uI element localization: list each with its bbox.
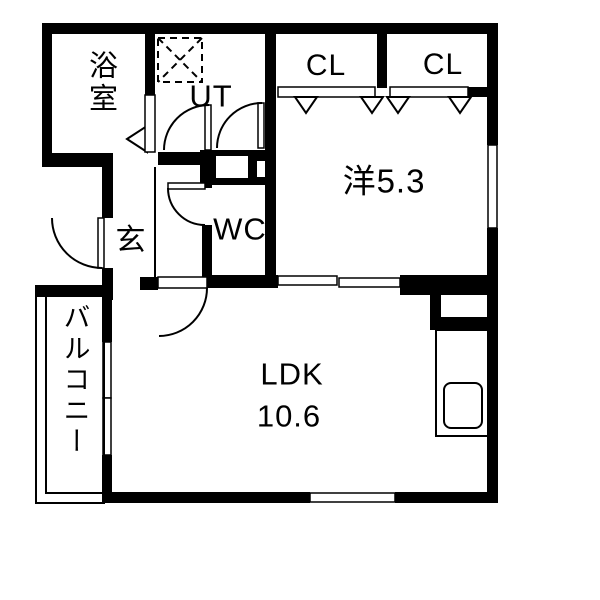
bath-door-opening-icon: [145, 95, 155, 152]
closet-left-door-icon: [278, 87, 375, 97]
closet-fold-mark-1-icon: [295, 97, 317, 113]
ut-door-right-leaf-icon: [258, 103, 264, 148]
label-ldk-size: 10.6: [257, 401, 321, 432]
wall-left-upper: [42, 23, 52, 167]
wall-bottom-right: [395, 492, 497, 503]
entrance-door-arc-icon: [52, 218, 102, 268]
wall-bottom-left: [102, 492, 310, 503]
label-closet-left: CL: [306, 51, 346, 81]
wall-entrance-left-upper: [102, 153, 113, 218]
wc-door-arc-icon: [168, 188, 205, 225]
entrance-step-line: [154, 167, 156, 277]
closet-fold-mark-3-icon: [387, 97, 409, 113]
kitchen-sink-icon: [444, 383, 482, 428]
floor-plan: 浴室 UT CL CL 洋5.3 WC 玄 LDK 10.6 バルコニー: [0, 0, 600, 600]
hall-ldk-door-arc-icon: [159, 288, 207, 336]
label-western-room: 洋5.3: [343, 165, 426, 198]
sliding-door-panel-right-icon: [339, 278, 400, 287]
wall-ut-bottom: [158, 152, 207, 165]
hall-ldk-door-leaf-icon: [158, 277, 207, 288]
sliding-door-panel-left-icon: [278, 276, 337, 285]
wall-closet-end: [468, 87, 487, 97]
label-entrance: 玄: [116, 226, 147, 256]
entrance-door-leaf-icon: [98, 218, 104, 268]
duct-notch-left: [216, 156, 248, 178]
label-bathroom: 浴室: [86, 50, 115, 116]
window-south-icon: [310, 493, 395, 502]
wall-ut-bedroom-divider: [265, 23, 276, 150]
wc-door-leaf-icon: [168, 183, 205, 189]
label-closet-right: CL: [423, 50, 463, 80]
wall-bath-ut-divider: [145, 33, 155, 95]
wall-bedroom-ldk-east: [400, 275, 497, 295]
bath-door-icon: [127, 126, 147, 152]
label-balcony: バルコニー: [61, 303, 88, 458]
closet-fold-mark-2-icon: [361, 97, 383, 113]
label-ldk: LDK: [260, 359, 323, 390]
wall-hall-ldk-right: [207, 275, 278, 288]
closet-fold-mark-4-icon: [449, 97, 471, 113]
label-utility: UT: [189, 81, 232, 112]
wall-wc-left-lower: [202, 225, 212, 277]
closet-right-door-icon: [390, 87, 468, 97]
wall-right-upper: [487, 23, 498, 145]
window-east-icon: [488, 145, 497, 228]
wall-closet-divider: [377, 33, 387, 88]
wall-kitchen-top: [430, 317, 490, 330]
wall-hall-ldk-left: [140, 277, 158, 290]
label-wc: WC: [213, 214, 267, 245]
